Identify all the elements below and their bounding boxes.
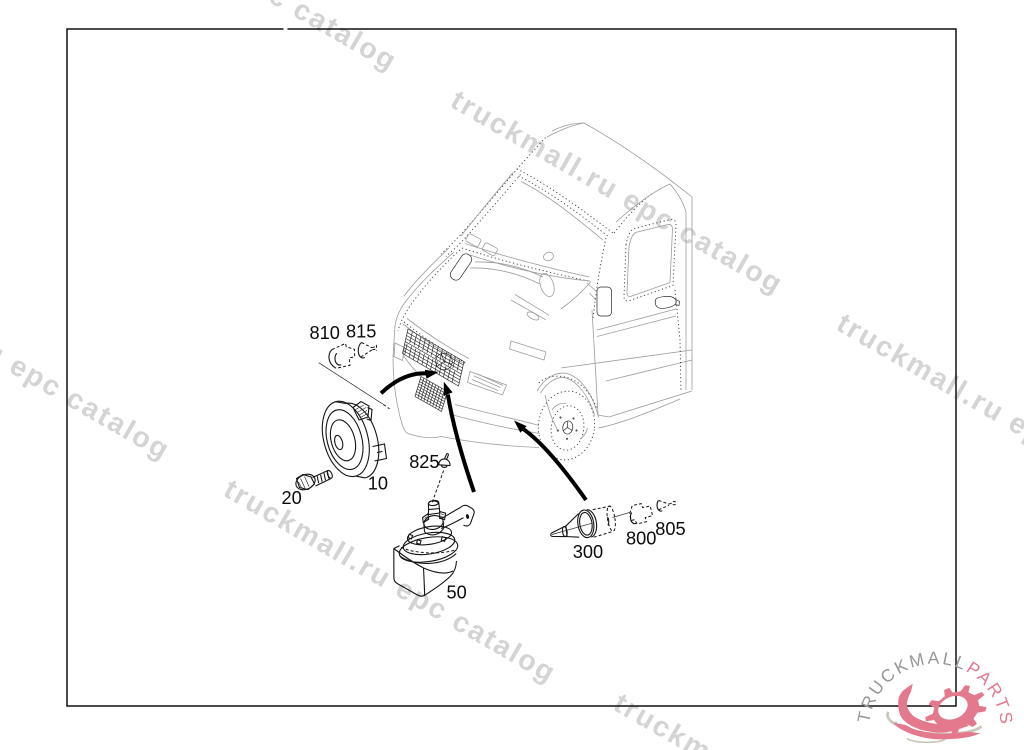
svg-text:805: 805 [655, 519, 685, 539]
svg-text:50: 50 [447, 582, 467, 602]
svg-text:815: 815 [346, 322, 376, 342]
svg-text:800: 800 [626, 529, 656, 549]
svg-text:825: 825 [409, 452, 439, 472]
svg-text:300: 300 [573, 542, 603, 562]
svg-text:810: 810 [310, 323, 340, 343]
svg-text:10: 10 [368, 474, 388, 494]
svg-text:20: 20 [282, 488, 302, 508]
